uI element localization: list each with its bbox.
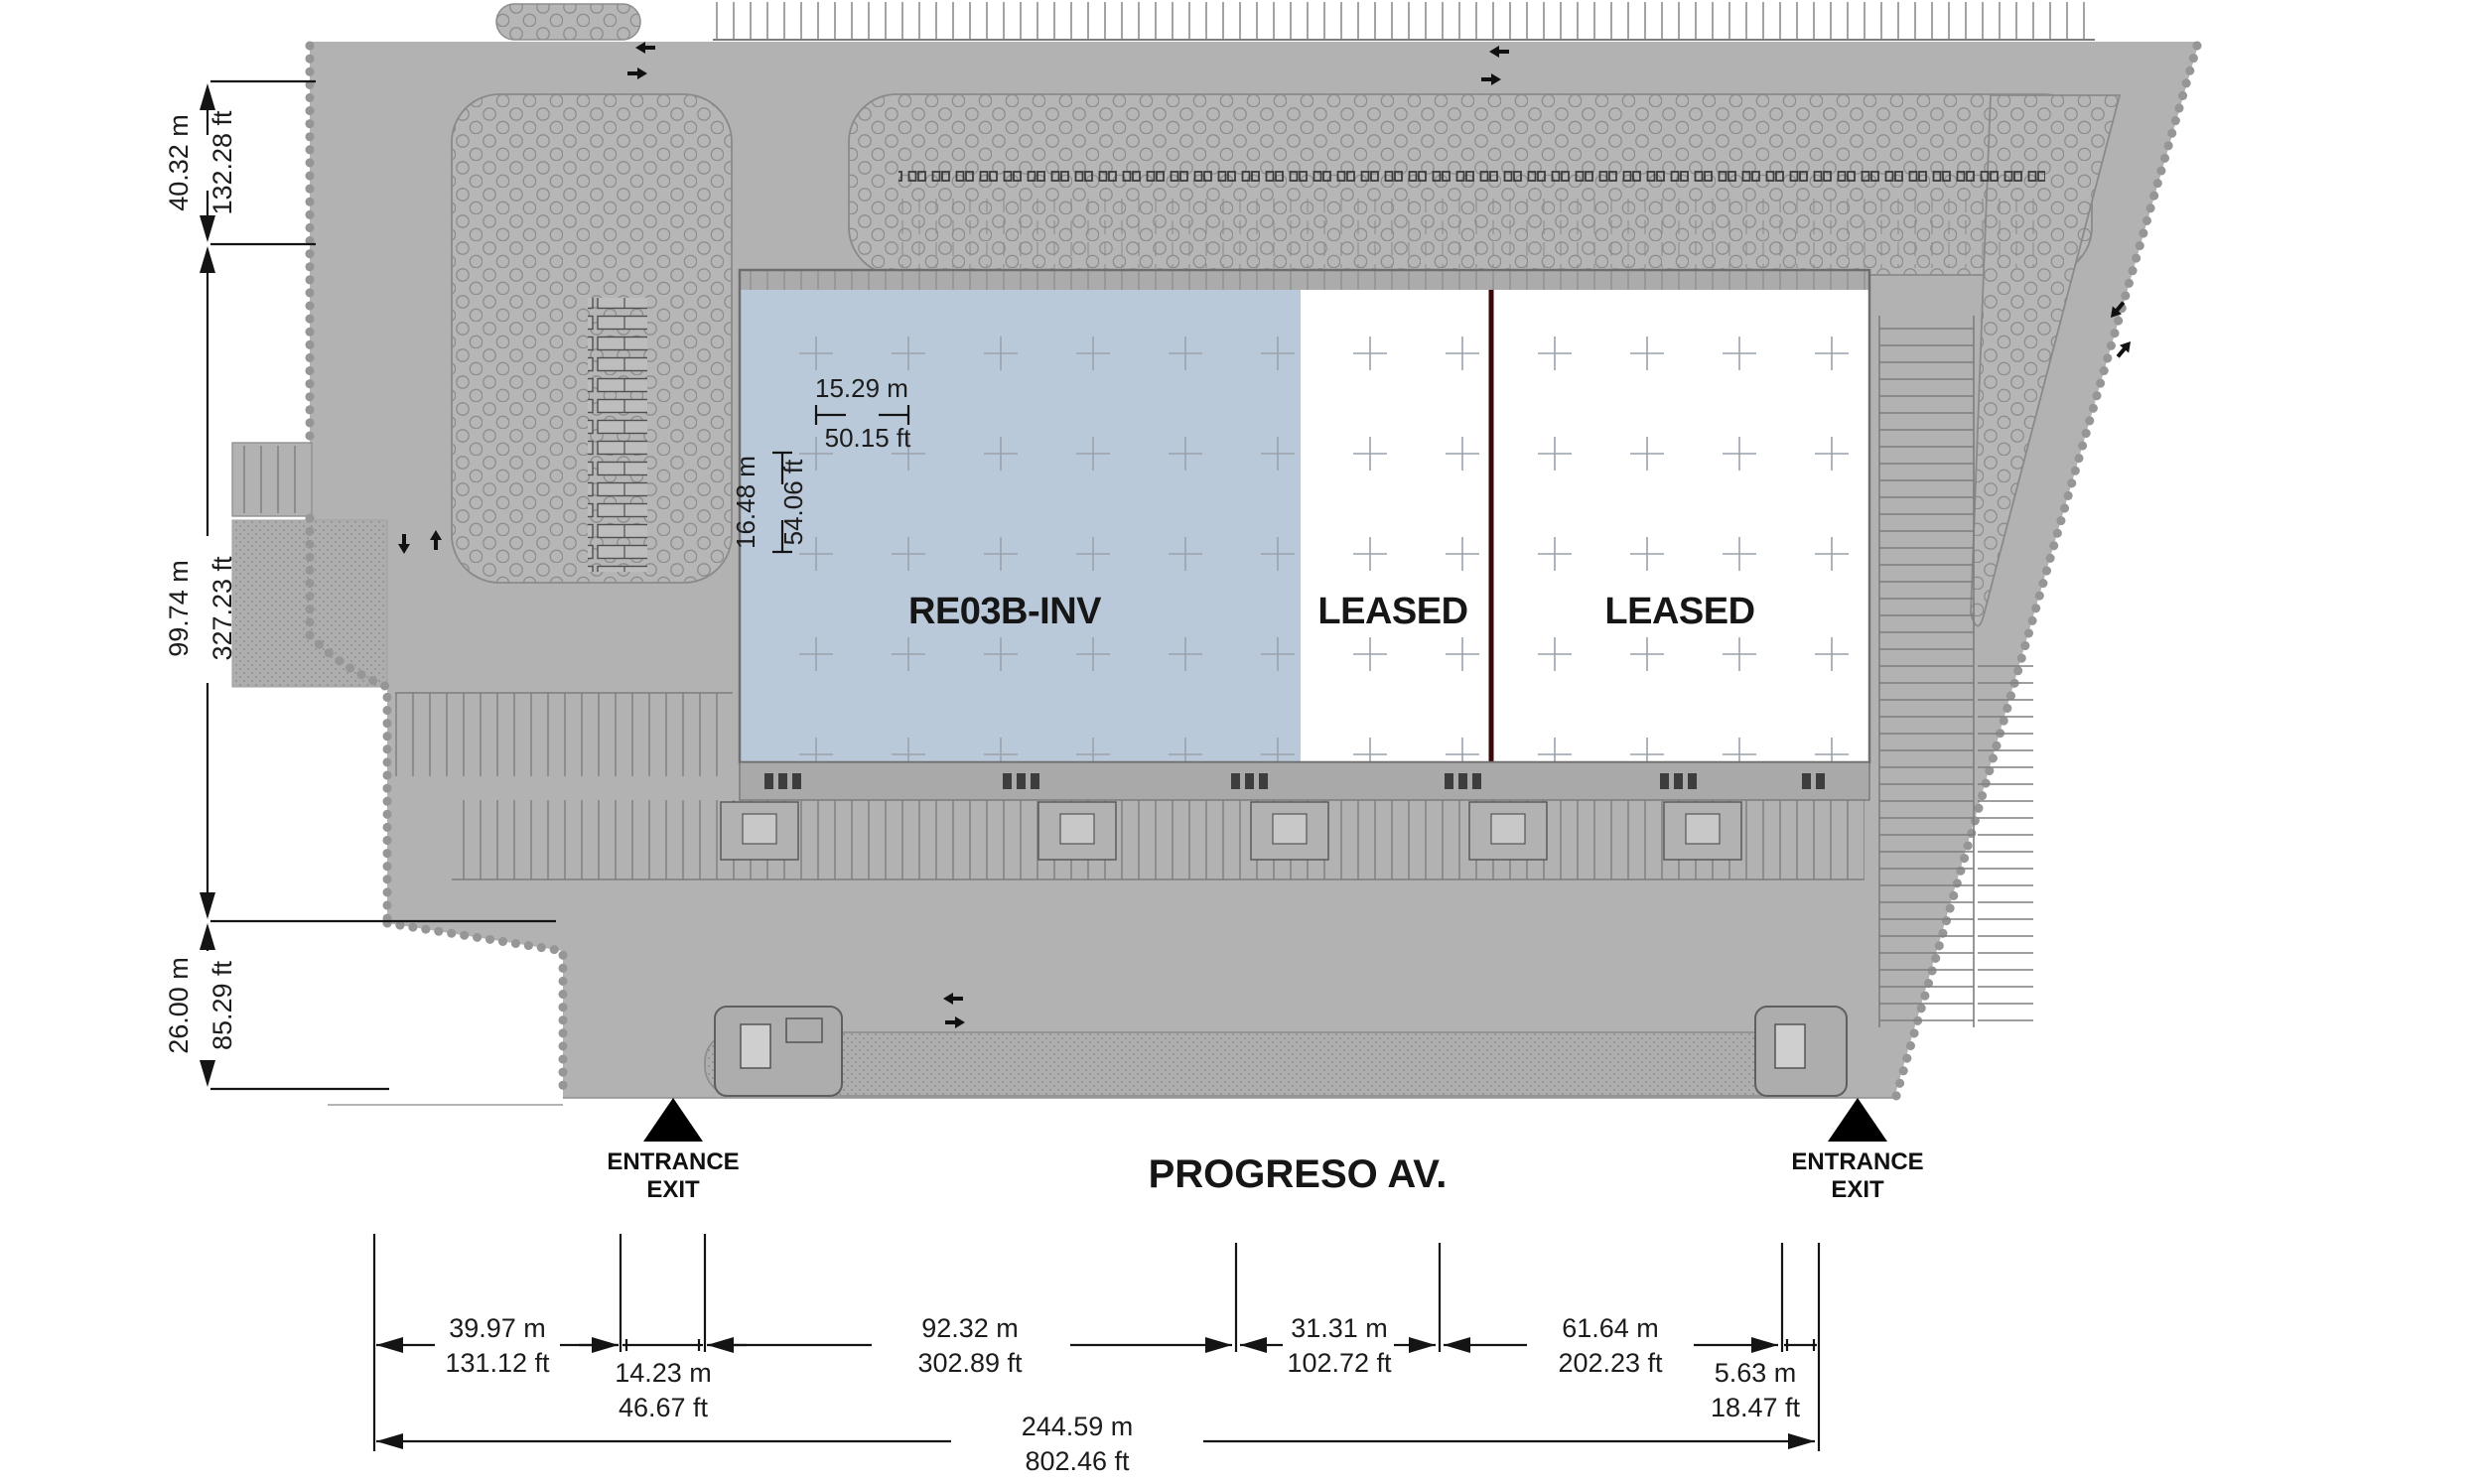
entrance-west: ENTRANCE EXIT [607,1098,739,1203]
dim-bottom-2: 92.32 m 302.89 ft [709,1313,1232,1378]
north-dock-stall-dashes [898,195,2045,268]
traffic-arrow [2114,337,2136,360]
dim-bottom-1: 14.23 m 46.67 ft [579,1337,747,1422]
dim-bottom-4-imperial: 202.23 ft [1558,1348,1663,1378]
dimensions-bottom: 39.97 m 131.12 ft 14.23 m 46.67 ft 92.32… [374,1234,1819,1476]
dim-left-0: 40.32 m 132.28 ft [164,83,237,242]
frontage-landscape-strip [705,1032,1841,1096]
dim-bottom-0-imperial: 131.12 ft [445,1348,550,1378]
north-trailer-row [496,2,2095,40]
dim-bottom-5-imperial: 18.47 ft [1711,1393,1801,1422]
dim-bay-depth-metric: 16.48 m [731,456,760,549]
southwest-parking-stalls [395,693,733,776]
entrance-east: ENTRANCE EXIT [1791,1098,1923,1203]
tree-line-southwest [387,923,563,1098]
dim-left-0-imperial: 132.28 ft [207,110,237,215]
dim-bottom-total-metric: 244.59 m [1022,1412,1134,1441]
dim-left-1-imperial: 327.23 ft [207,556,237,661]
building-north-dock-ticks [740,270,1869,290]
entrance-triangle-icon [1828,1098,1887,1142]
dim-bottom-2-imperial: 302.89 ft [917,1348,1023,1378]
entrance-triangle-icon [643,1098,703,1142]
gatehouse-west [715,1007,842,1096]
street-name: PROGRESO AV. [1149,1152,1448,1196]
dim-bottom-1-imperial: 46.67 ft [619,1393,709,1422]
dim-bottom-4-metric: 61.64 m [1562,1313,1659,1343]
unit-label-leased-1: LEASED [1317,591,1467,632]
dim-left-1: 99.74 m 327.23 ft [164,246,237,919]
east-parking-stalls-lower [1978,655,2033,1027]
unit-label-available: RE03B-INV [908,591,1102,632]
dim-bottom-5-metric: 5.63 m [1715,1358,1797,1388]
entrance-label-line1: ENTRANCE [1791,1148,1923,1175]
dim-bottom-2-metric: 92.32 m [921,1313,1019,1343]
dim-bay-width-metric: 15.29 m [815,373,908,403]
dim-left-2-imperial: 85.29 ft [207,960,237,1050]
south-dock-apron [740,762,1869,800]
dim-left-1-metric: 99.74 m [164,560,194,657]
dim-bottom-total: 244.59 m 802.46 ft [376,1412,1815,1476]
entrance-label-line2: EXIT [1831,1176,1884,1203]
entrance-label-line2: EXIT [646,1176,700,1203]
north-dock-doors [898,167,2045,195]
east-parking-stalls-upper [1879,316,1974,1027]
site-plan-page: RE03B-INV LEASED LEASED [0,0,2487,1484]
dim-bottom-0-metric: 39.97 m [449,1313,546,1343]
dim-bay-depth-imperial: 54.06 ft [778,459,808,546]
dim-left-2: 26.00 m 85.29 ft [164,923,237,1087]
north-oval-island [496,4,640,40]
dim-left-2-metric: 26.00 m [164,957,194,1054]
west-parking-notch-stalls [236,446,309,513]
north-trailer-stalls [713,2,2095,40]
dim-bottom-5: 5.63 m 18.47 ft [1711,1339,1817,1422]
west-island-trailer-stalls [588,298,647,572]
site-plan-drawing: RE03B-INV LEASED LEASED [0,0,2487,1484]
dim-bottom-total-imperial: 802.46 ft [1025,1446,1130,1476]
dim-bottom-1-metric: 14.23 m [615,1358,712,1388]
south-trailer-stalls [452,800,1865,879]
column-grid [740,290,1869,762]
dim-bottom-3-imperial: 102.72 ft [1287,1348,1392,1378]
entrance-label-line1: ENTRANCE [607,1148,739,1175]
dim-bottom-3: 31.31 m 102.72 ft [1240,1313,1436,1378]
dim-bay-width-imperial: 50.15 ft [825,423,912,453]
dim-bottom-3-metric: 31.31 m [1291,1313,1388,1343]
dim-left-0-metric: 40.32 m [164,114,194,211]
unit-label-leased-2: LEASED [1604,591,1754,632]
gatehouse-east [1755,1007,1847,1096]
